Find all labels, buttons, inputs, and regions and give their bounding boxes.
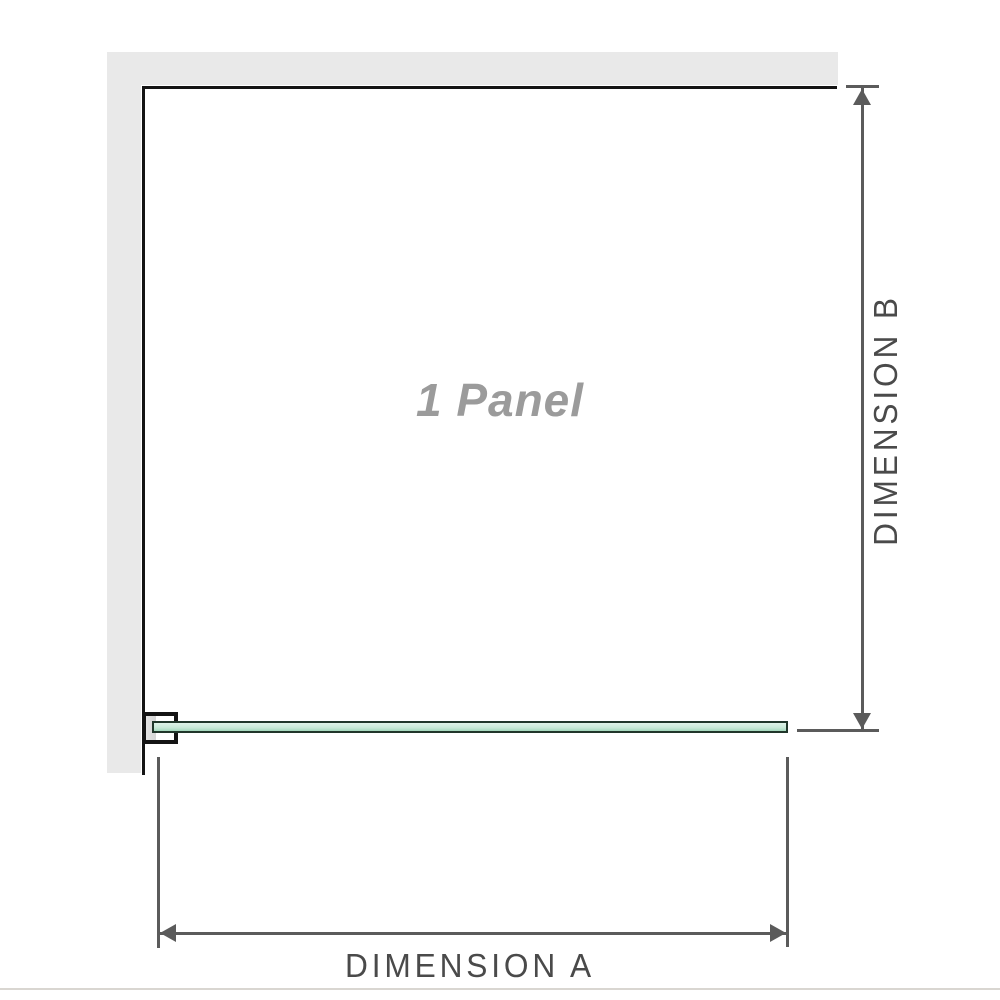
wall-top [107, 52, 838, 85]
shower-panel-diagram: DIMENSION B DIMENSION A 1 Panel [0, 0, 1000, 1000]
dimension-b-label: DIMENSION B [867, 294, 905, 546]
image-bottom-edge-line [0, 988, 1000, 990]
dimension-a-line [160, 932, 786, 935]
opening-outline-top [142, 86, 837, 89]
dimension-b-arrow-down-icon [853, 713, 871, 729]
dimension-a-arrow-right-icon [770, 924, 786, 942]
opening-outline-left [142, 86, 145, 775]
dimension-a-label: DIMENSION A [345, 947, 595, 985]
dimension-a-extension-left [157, 757, 160, 948]
wall-left [107, 52, 141, 773]
dimension-a-arrow-left-icon [160, 924, 176, 942]
dimension-a-extension-right [786, 757, 789, 947]
panel-count-label: 1 Panel [416, 373, 584, 427]
dimension-b-line [861, 88, 864, 730]
dimension-b-arrow-up-icon [853, 89, 871, 105]
glass-panel [152, 721, 788, 733]
dimension-b-tick-bottom [797, 729, 879, 732]
